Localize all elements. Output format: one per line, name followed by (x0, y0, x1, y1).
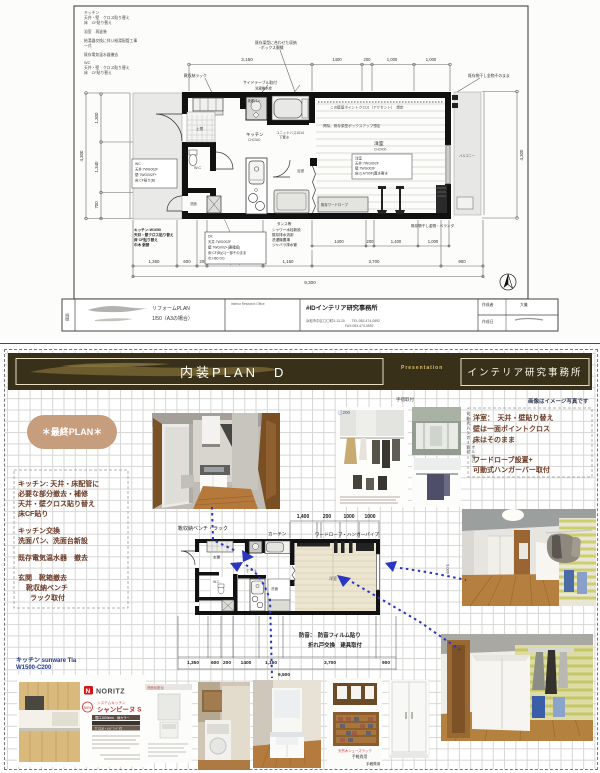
svg-text:キッチン: キッチン (246, 132, 264, 137)
svg-text:キッチン:W1650: キッチン:W1650 (134, 227, 161, 232)
svg-text:W1500-C200: W1500-C200 (16, 665, 52, 671)
svg-text:＊最終PLAN＊: ＊最終PLAN＊ (42, 426, 103, 437)
svg-text:1,400: 1,400 (391, 239, 402, 244)
svg-text:洋室: 洋室 (329, 575, 337, 581)
svg-text:1,160: 1,160 (283, 259, 295, 264)
svg-text:3,150: 3,150 (241, 57, 253, 62)
svg-text:CH2400: CH2400 (374, 148, 387, 152)
svg-text:作成日: 作成日 (482, 319, 494, 324)
svg-text:既存物干し金物・ベランダ: 既存物干し金物・ベランダ (411, 223, 455, 228)
svg-text:この壁面ポイントクロス（アクセント） 想定: この壁面ポイントクロス（アクセント） 想定 (330, 105, 404, 110)
svg-text:1400: 1400 (241, 660, 252, 666)
svg-text:洗面: 洗面 (190, 201, 197, 206)
svg-text:1,350: 1,350 (149, 259, 161, 264)
svg-text:タオル掛け: タオル掛け (471, 440, 477, 465)
svg-text:既存排水流用: 既存排水流用 (272, 232, 294, 237)
svg-text:W.C: W.C (213, 580, 220, 584)
svg-text:700: 700 (94, 201, 99, 209)
svg-text:天井・壁クロス貼り替え: 天井・壁クロス貼り替え (18, 499, 95, 508)
svg-text:DK: DK (208, 235, 213, 239)
svg-text:1,300: 1,300 (94, 112, 99, 124)
svg-text:#IDインテリア研究事務所: #IDインテリア研究事務所 (306, 304, 378, 312)
svg-text:巾木 張替: 巾木 張替 (134, 242, 150, 247)
svg-text:カーテン: カーテン (268, 532, 287, 538)
svg-text:CH2340: CH2340 (248, 138, 261, 142)
svg-text:ワードローブ・ハンガーパイプ: ワードローブ・ハンガーパイプ (315, 531, 379, 538)
svg-text:床はそのまま: 床はそのまま (473, 435, 515, 444)
svg-text:ユニットバス1014: ユニットバス1014 (276, 130, 304, 135)
svg-text:W.C: W.C (194, 166, 201, 170)
svg-text:200: 200 (364, 57, 372, 62)
svg-text:ｶﾞｽｺﾝﾛ・ﾚﾝｼﾞﾌｰﾄﾞ付: ｶﾞｽｺﾝﾛ・ﾚﾝｼﾞﾌｰﾄﾞ付 (95, 726, 122, 731)
svg-text:壁:7WG002F+: 壁:7WG002F+ (135, 172, 157, 177)
svg-text:床:CF(B)(C)一部そのまま: 床:CF(B)(C)一部そのまま (208, 250, 246, 255)
svg-text:200: 200 (367, 239, 375, 244)
svg-text:4,300: 4,300 (79, 150, 84, 162)
svg-text:シャワー水栓新設: シャワー水栓新設 (272, 227, 301, 232)
svg-text:インテリア研究事務所: インテリア研究事務所 (467, 367, 582, 379)
svg-text:キッチン sunware Tia: キッチン sunware Tia (16, 657, 77, 664)
svg-text:1,350: 1,350 (187, 660, 199, 666)
svg-text:天然木シューズラック: 天然木シューズラック (338, 748, 372, 753)
svg-text:内装PLAN D: 内装PLAN D (180, 365, 286, 380)
svg-text:1,000: 1,000 (387, 57, 398, 62)
svg-text:9,500: 9,500 (278, 672, 290, 678)
svg-text:3,700: 3,700 (324, 660, 336, 666)
svg-text:洗面パン、洗面台新設: 洗面パン、洗面台新設 (18, 536, 89, 545)
svg-text:既存電気温水器 撤去: 既存電気温水器 撤去 (18, 553, 88, 562)
svg-text:洗濯機置場: 洗濯機置場 (272, 237, 290, 242)
svg-text:洗面: 洗面 (271, 586, 279, 591)
svg-text:リフォームPLAN: リフォームPLAN (152, 306, 190, 312)
svg-text:Presentation: Presentation (401, 365, 443, 371)
svg-text:ワードローブ設置+: ワードローブ設置+ (473, 455, 533, 464)
svg-text:下置き: 下置き (279, 135, 289, 140)
svg-text:画像はイメージ写真です: 画像はイメージ写真です (528, 397, 589, 405)
svg-text:掲除、既存梁型ボックスアップ想定: 掲除、既存梁型ボックスアップ想定 (323, 123, 381, 128)
svg-text:9,300: 9,300 (304, 280, 316, 285)
svg-text:WC: WC (84, 61, 91, 65)
svg-text:手軽費用: 手軽費用 (366, 761, 381, 766)
svg-text:･ボックス胴縁: ･ボックス胴縁 (259, 45, 284, 50)
svg-text:1000: 1000 (364, 514, 375, 520)
svg-text:キッチン: 天井・床配管に: キッチン: 天井・床配管に (18, 479, 99, 488)
svg-text:洗面化粧台: 洗面化粧台 (147, 685, 165, 690)
svg-text:床:(LA700F)置き敷き: 床:(LA700F)置き敷き (355, 171, 388, 176)
svg-text:1000: 1000 (343, 514, 354, 520)
svg-text:給湯器交換に伴い給湯配管工事: 給湯器交換に伴い給湯配管工事 (84, 38, 137, 43)
svg-text:キッチン交換: キッチン交換 (18, 526, 61, 535)
svg-text:洋室: 洋室 (374, 140, 384, 147)
svg-text:靴収納ベンチ・ラック: 靴収納ベンチ・ラック (178, 525, 228, 532)
svg-text:玄関 靴箱撤去: 玄関 靴箱撤去 (18, 573, 67, 582)
svg-text:浴室 再塗装: 浴室 再塗装 (84, 29, 107, 34)
svg-text:手軽費用: 手軽費用 (352, 754, 367, 759)
svg-text:3,700: 3,700 (369, 259, 381, 264)
svg-text:4,300: 4,300 (519, 149, 524, 161)
svg-text:1,340: 1,340 (94, 161, 99, 173)
svg-text:600: 600 (183, 259, 191, 264)
svg-text:200: 200 (223, 660, 231, 666)
svg-text:必要な部分撤去・補修: 必要な部分撤去・補修 (17, 489, 89, 498)
svg-text:ジャバラ排水管: ジャバラ排水管 (272, 242, 297, 247)
svg-text:既存梁型に合わせた収納: 既存梁型に合わせた収納 (255, 40, 297, 45)
svg-text:FAX:053-474-0592: FAX:053-474-0592 (345, 324, 374, 328)
svg-text:床:CF貼り(B): 床:CF貼り(B) (135, 178, 155, 183)
svg-text:シャンピーヌ S: シャンピーヌ S (97, 705, 142, 714)
svg-text:壁:7WG002+(要確認): 壁:7WG002+(要確認) (208, 245, 240, 250)
svg-text:WC: WC (135, 162, 141, 166)
svg-text:キッチン: キッチン (84, 10, 99, 15)
svg-text:洋室: 洋室 (355, 156, 363, 161)
svg-text:壁は一面ポイントクロス: 壁は一面ポイントクロス (473, 424, 550, 433)
svg-text:天井:7WG002F: 天井:7WG002F (135, 167, 158, 172)
svg-text:タンス等: タンス等 (277, 221, 292, 226)
svg-text:床 CF貼り替え: 床 CF貼り替え (84, 20, 112, 25)
svg-text:1400: 1400 (332, 57, 342, 62)
svg-text:浜松市中区〇〇町3-13-20 TEL:053-474-0: 浜松市中区〇〇町3-13-20 TEL:053-474-0592 (306, 318, 380, 323)
svg-text:N: N (86, 688, 91, 695)
svg-text:ラック取付: ラック取付 (30, 593, 65, 602)
svg-text:〼200: 〼200 (338, 410, 351, 415)
svg-text:床 CF貼り替え: 床 CF貼り替え (84, 70, 112, 75)
svg-text:折れ戸交換 建具取付: 折れ戸交換 建具取付 (308, 641, 363, 649)
svg-text:可動式ハンガーバー取付: 可動式ハンガーバー取付 (473, 465, 550, 474)
svg-text:200: 200 (323, 514, 332, 520)
svg-text:バルコニー: バルコニー (459, 154, 475, 158)
svg-text:1,000: 1,000 (428, 239, 439, 244)
svg-text:間口1500mm 扉カラー: 間口1500mm 扉カラー (95, 715, 130, 720)
svg-text:靴収納ラック: 靴収納ラック (184, 73, 207, 78)
svg-text:天井:7WG002F: 天井:7WG002F (355, 161, 379, 166)
svg-text:玄関: 玄関 (213, 555, 221, 560)
svg-text:洋室： 天井・壁貼り替え: 洋室： 天井・壁貼り替え (473, 413, 554, 422)
svg-text:洗濯パン: 洗濯パン (248, 98, 261, 103)
svg-text:既存電気温水器撤去: 既存電気温水器撤去 (84, 52, 118, 57)
svg-text:天井:7WG002F: 天井:7WG002F (208, 239, 231, 244)
svg-text:50%: 50% (84, 706, 92, 710)
svg-text:作成者: 作成者 (482, 302, 494, 307)
svg-text:床CF貼り: 床CF貼り (18, 509, 48, 518)
svg-text:900: 900 (458, 259, 466, 264)
svg-text:天井・壁 クロス貼り替え: 天井・壁 クロス貼り替え (84, 15, 130, 20)
svg-text:天井・壁クロス貼り替え: 天井・壁クロス貼り替え (134, 232, 174, 237)
svg-text:1400: 1400 (334, 239, 344, 244)
svg-text:防音： 防音フィルム貼り: 防音： 防音フィルム貼り (299, 631, 361, 639)
svg-text:900: 900 (382, 660, 390, 666)
svg-text:天井・壁 クロス貼り替え: 天井・壁 クロス貼り替え (84, 65, 130, 70)
svg-text:壁:7WG002F: 壁:7WG002F (355, 166, 375, 171)
svg-text:既存ワードローブ: 既存ワードローブ (321, 202, 349, 207)
svg-text:浴室: 浴室 (297, 168, 305, 173)
svg-text:既存物干し金物そのまま: 既存物干し金物そのまま (468, 73, 510, 78)
svg-text:手摺取付: 手摺取付 (396, 396, 414, 403)
svg-text:NORITZ: NORITZ (96, 689, 125, 696)
svg-text:床 CF貼り替え: 床 CF貼り替え (134, 237, 158, 242)
svg-text:土間: 土間 (196, 126, 204, 131)
svg-text:システムキッチン: システムキッチン (97, 700, 126, 705)
svg-text:3,000: 3,000 (446, 564, 451, 575)
svg-text:図面: 図面 (65, 313, 70, 321)
svg-text:大儀: 大儀 (520, 302, 528, 307)
svg-text:一式: 一式 (84, 43, 92, 48)
svg-text:Interior Research Office: Interior Research Office (231, 302, 265, 306)
svg-text:靴収納ベンチ: 靴収納ベンチ (26, 583, 68, 592)
svg-text:1/50（A3の場合）: 1/50（A3の場合） (152, 315, 193, 322)
svg-text:1,400: 1,400 (297, 514, 310, 520)
svg-text:巾:H60 DG: 巾:H60 DG (208, 256, 225, 261)
svg-text:1,000: 1,000 (426, 57, 437, 62)
svg-text:サイドテーブル取付: サイドテーブル取付 (243, 80, 277, 85)
svg-text:600: 600 (211, 660, 219, 666)
